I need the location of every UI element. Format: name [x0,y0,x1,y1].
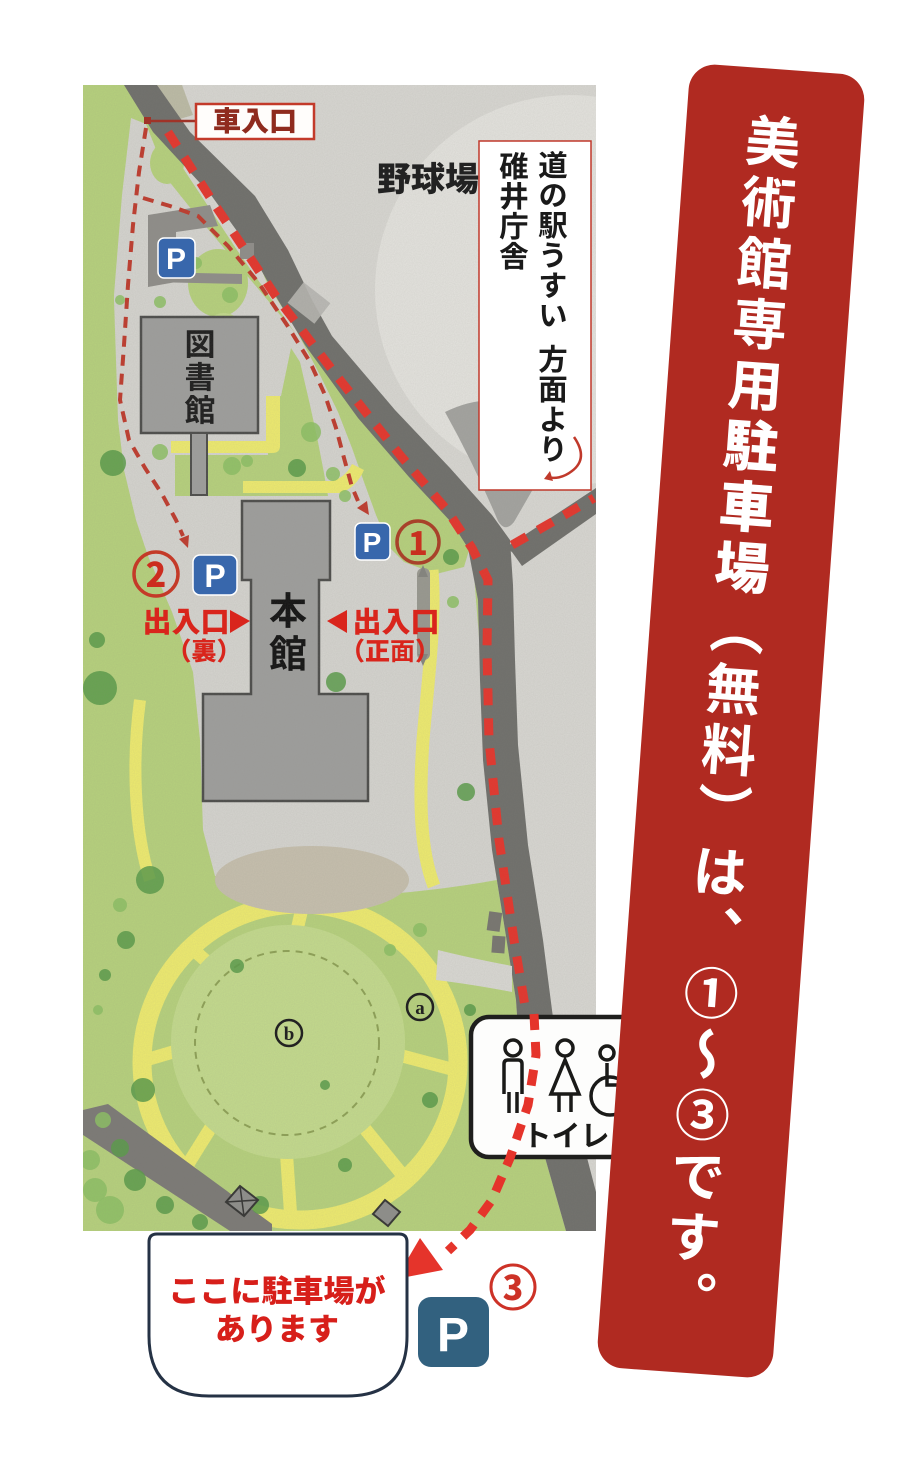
svg-text:P: P [437,1309,469,1362]
svg-text:b: b [284,1024,295,1045]
svg-text:P: P [166,243,186,276]
svg-text:P: P [363,527,382,558]
svg-text:a: a [415,998,425,1019]
svg-text:P: P [204,558,225,594]
